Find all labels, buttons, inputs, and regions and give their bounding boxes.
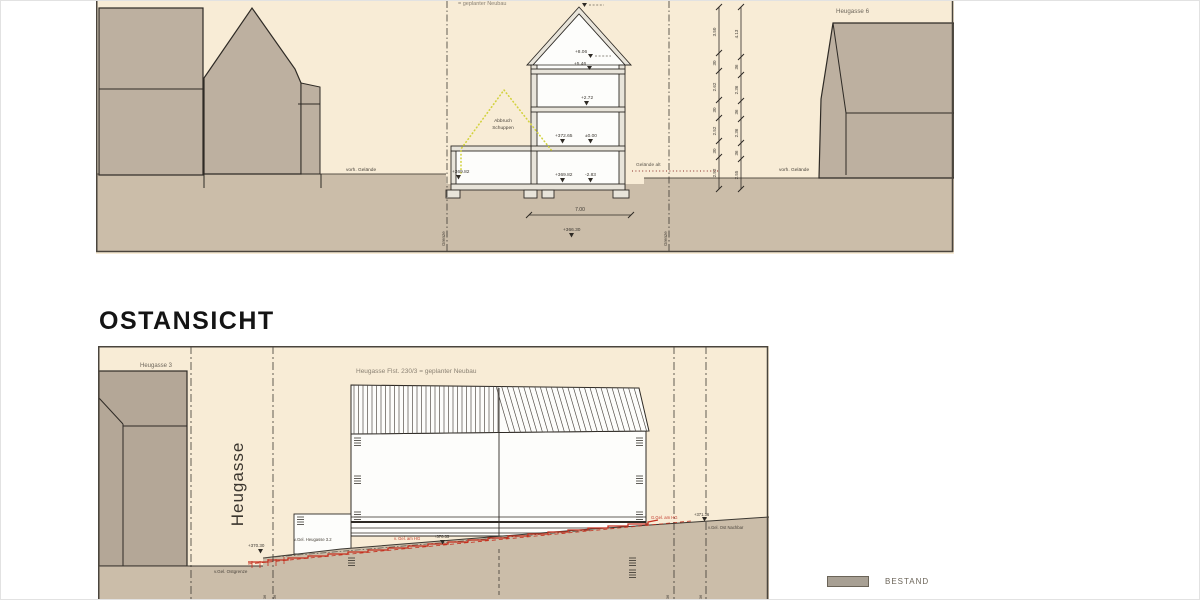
demolition-label-line2: Schuppen xyxy=(492,125,514,131)
svg-text:36: 36 xyxy=(262,594,267,599)
architectural-drawing-sheet: Abbruch Schuppen Gelände alt +8.06 +5.46… xyxy=(0,0,1200,600)
planned-building-label: Heugasse Flst. 230/3 = geplanter Neubau xyxy=(356,368,477,375)
svg-text:2.52: 2.52 xyxy=(712,126,717,135)
level-basement-rel: -2.83 xyxy=(585,172,596,178)
level-ground-floor-abs: +372.65 xyxy=(555,133,573,139)
existing-ground-hg-label: v. Gel. am HG xyxy=(394,536,420,541)
boundary-label-right: Grenze xyxy=(663,231,668,246)
svg-text:36: 36 xyxy=(734,64,739,70)
level-ground-floor-rel: ±0.00 xyxy=(585,133,597,139)
planned-ground-hg-label: G.Gel. am HG xyxy=(651,515,678,520)
planned-building-facade xyxy=(351,384,653,549)
east-view-drawing: Heugasse 3 xyxy=(98,346,769,600)
svg-text:2.62: 2.62 xyxy=(712,82,717,91)
section-drawing-panel: Abbruch Schuppen Gelände alt +8.06 +5.46… xyxy=(96,1,954,254)
east-view-panel: Heugasse 3 xyxy=(98,346,769,600)
legend-bestand-label: BESTAND xyxy=(885,577,929,586)
neighbor-right-label: Heugasse 6 xyxy=(836,8,870,15)
svg-text:36: 36 xyxy=(272,594,277,599)
view-title: OSTANSICHT xyxy=(99,307,275,336)
planned-ground-hg-value: +371.36 xyxy=(694,512,710,517)
svg-text:30: 30 xyxy=(712,107,717,113)
level-upper-floor: +2.72 xyxy=(581,95,593,101)
existing-terrain-label-right: vorh. Gelände xyxy=(779,167,809,173)
east-boundary-ground-label: v.Gel. Ostgrenze xyxy=(214,569,248,574)
svg-text:4.13: 4.13 xyxy=(734,29,739,38)
svg-text:30: 30 xyxy=(712,60,717,66)
svg-text:36: 36 xyxy=(734,150,739,156)
boundary-label-left: Grenze xyxy=(441,231,446,246)
legend-bestand-swatch xyxy=(827,576,869,587)
annex-building xyxy=(294,514,351,554)
svg-text:36: 36 xyxy=(698,594,703,599)
width-dim-value: 7.00 xyxy=(575,207,585,213)
level-eaves: +5.46 xyxy=(574,61,586,67)
street-name-label: Heugasse xyxy=(228,442,247,527)
section-drawing: Abbruch Schuppen Gelände alt +8.06 +5.46… xyxy=(96,1,954,254)
street-level-value: +370.30 xyxy=(248,543,265,548)
neighbor-left-label: Heugasse 3 xyxy=(140,363,173,369)
svg-text:36: 36 xyxy=(734,109,739,115)
level-ridge: +8.06 xyxy=(575,49,587,55)
svg-text:2.55: 2.55 xyxy=(734,170,739,179)
old-terrain-label: Gelände alt xyxy=(636,162,661,168)
svg-text:36: 36 xyxy=(665,594,670,599)
svg-text:30: 30 xyxy=(712,148,717,154)
svg-text:3.50: 3.50 xyxy=(712,27,717,36)
planned-building-caption: = geplanter Neubau xyxy=(458,1,506,7)
svg-text:2.52: 2.52 xyxy=(712,168,717,177)
level-basement-abs: +369.82 xyxy=(555,172,573,178)
street-level-label: v.Gel. Heugasse 3.2 xyxy=(294,537,332,542)
svg-text:2.36: 2.36 xyxy=(734,128,739,137)
existing-terrain-label-left: vorh. Gelände xyxy=(346,167,376,173)
svg-text:2.36: 2.36 xyxy=(734,85,739,94)
level-annex-floor: +369.82 xyxy=(452,169,470,175)
neighbor-ground-label: v.Gel. Ost Nachbar xyxy=(708,525,744,530)
level-foundation: +366.30 xyxy=(563,227,581,233)
demolition-label-line1: Abbruch xyxy=(494,118,512,124)
neighbor-building-heugasse3 xyxy=(99,371,187,566)
neighbor-building-right xyxy=(819,23,954,178)
existing-ground-hg-value: +370.35 xyxy=(434,534,450,539)
legend: BESTAND xyxy=(827,576,929,587)
